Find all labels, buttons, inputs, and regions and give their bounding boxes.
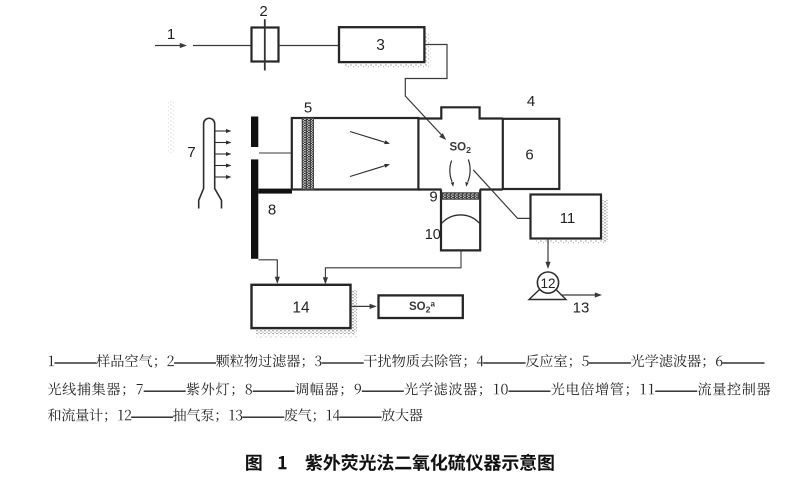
svg-text:6: 6 xyxy=(525,147,533,164)
svg-text:9: 9 xyxy=(429,189,437,206)
svg-text:8: 8 xyxy=(268,202,276,219)
svg-text:4: 4 xyxy=(527,93,535,110)
svg-text:14: 14 xyxy=(292,300,310,317)
svg-text:13: 13 xyxy=(573,300,590,317)
svg-text:1: 1 xyxy=(167,26,175,43)
svg-text:5: 5 xyxy=(304,100,312,117)
svg-text:10: 10 xyxy=(425,227,441,243)
svg-text:12: 12 xyxy=(540,276,555,291)
svg-text:3: 3 xyxy=(376,37,385,54)
svg-text:7: 7 xyxy=(187,144,195,161)
svg-text:11: 11 xyxy=(560,210,576,227)
svg-text:2: 2 xyxy=(259,3,267,20)
